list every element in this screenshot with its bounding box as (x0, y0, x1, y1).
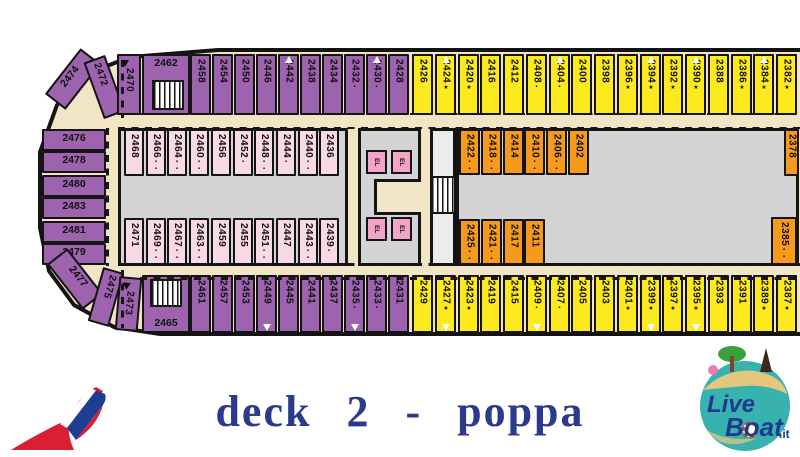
elevator-label: EL (398, 158, 405, 166)
corridor-wall-dashes (106, 128, 109, 266)
cabin-2397: 2397★ (662, 275, 683, 333)
cabin-marker: ▪ (374, 83, 380, 91)
cabin-2478: 2478 (42, 151, 106, 173)
cabin-number: 2432 (350, 56, 360, 83)
cabin-2467: 2467▪▪ (167, 218, 187, 265)
cabin-number: 2459 (216, 220, 226, 247)
cabin-number: 2469 (151, 220, 161, 247)
cabin-marker: ★ (739, 83, 745, 92)
cabin-number: 2415 (509, 277, 519, 304)
cabin-2425: 2425▪▪ (459, 219, 480, 265)
cabin-2441: 2441 (300, 275, 321, 333)
cabin-2419: 2419 (480, 275, 501, 333)
cabin-number: 2409 (532, 277, 542, 304)
cabin-2461: 2461 (190, 275, 211, 333)
cabin-marker: ▪▪ (153, 247, 159, 262)
cabin-2418: 2418▪▪ (481, 129, 502, 175)
cabin-number: 2418 (487, 131, 497, 158)
cabin-number: 2408 (532, 56, 542, 83)
cabin-number: 2392 (668, 56, 678, 83)
cabin-2420: 2420★ (458, 54, 479, 115)
cabin-2386: 2386★ (731, 54, 752, 115)
cabin-2407: 2407▪ (549, 275, 570, 333)
cabin-2460: 2460▪▪ (189, 129, 209, 176)
cabin-2387: 2387★ (776, 275, 797, 333)
cabin-marker: ★ (761, 83, 767, 92)
cabin-marker: ▪▪ (554, 158, 560, 173)
cabin-number: 2441 (306, 277, 316, 304)
cabin-marker: ▪ (557, 83, 563, 91)
cabin-number: 2405 (577, 277, 587, 304)
cabin-number: 2450 (240, 56, 250, 83)
cabin-marker: ▪ (352, 83, 358, 91)
cabin-2408: 2408▪ (526, 54, 547, 115)
cabin-2433: 2433▪ (366, 275, 387, 333)
cabin-number: 2467 (172, 220, 182, 247)
cabin-number: 2414 (509, 131, 519, 158)
cabin-number: 2463 (194, 220, 204, 247)
elevator-label: EL (398, 225, 405, 233)
cabin-number: 2466 (151, 131, 161, 158)
cabin-2403: 2403 (594, 275, 615, 333)
cabin-2457: 2457 (212, 275, 233, 333)
cabin-number: 2455 (238, 220, 248, 247)
cabin-marker: ★ (648, 83, 654, 92)
cabin-2406: 2406▪▪ (546, 129, 567, 175)
cabin-marker: ▪▪ (781, 246, 787, 261)
cabin-number: 2425 (465, 221, 475, 248)
cabin-2446: 2446 (256, 54, 277, 115)
cabin-2399: 2399★ (640, 275, 661, 333)
cabin-marker: ★ (466, 83, 472, 92)
cabin-2395: 2395★ (685, 275, 706, 333)
cabin-2454: 2454 (212, 54, 233, 115)
cabin-2411: 2411 (524, 219, 545, 265)
cabin-marker: ▪▪ (174, 247, 180, 262)
door-triangle-icon (285, 56, 293, 63)
cabin-number: 2389 (759, 277, 769, 304)
cabin-2430: 2430▪ (366, 54, 387, 115)
deck-plan-page: 24582454245024462442243824342432▪2430▪24… (0, 0, 800, 457)
cabin-2410: 2410▪▪ (524, 129, 545, 175)
cabin-number: 2483 (62, 199, 85, 212)
cabin-2432: 2432▪ (344, 54, 365, 115)
cabin-2414: 2414 (503, 129, 524, 175)
cabin-2463: 2463▪▪ (189, 218, 209, 265)
cabin-number: 2461 (196, 277, 206, 304)
cabin-2473: 2473 (115, 276, 143, 332)
door-triangle-icon (373, 56, 381, 63)
cabin-number: 2431 (394, 277, 404, 304)
cabin-number: 2407 (555, 277, 565, 304)
cabin-marker: ★ (761, 304, 767, 313)
cabin-number: 2399 (646, 277, 656, 304)
cabin-2404: 2404▪ (549, 54, 570, 115)
cabin-marker: ▪▪ (174, 158, 180, 173)
cabin-number: 2452 (238, 131, 248, 158)
corridor-wall-dashes (121, 60, 124, 118)
cabin-2449: 2449 (256, 275, 277, 333)
door-triangle-icon (351, 324, 359, 331)
cabin-marker: ▪▪ (153, 158, 159, 173)
elevator: EL (366, 150, 387, 174)
cabin-2402: 2402 (568, 129, 589, 175)
door-triangle-icon (533, 324, 541, 331)
cabin-number: 2449 (262, 277, 272, 304)
cabin-number: 2444 (281, 131, 291, 158)
cabin-number: 2437 (328, 277, 338, 304)
cabin-number: 2421 (487, 221, 497, 248)
cabin-number: 2477 (67, 263, 91, 289)
cabin-marker: ▪ (240, 158, 246, 166)
cabin-marker: ▪ (557, 304, 563, 312)
cabin-marker: ▪▪ (305, 158, 311, 173)
cabin-number: 2446 (262, 56, 272, 83)
cabin-number: 2382 (782, 56, 792, 83)
cabin-2400: 2400 (571, 54, 592, 115)
cabin-2405: 2405 (571, 275, 592, 333)
corridor-wall-dashes (140, 277, 800, 280)
cabin-2423: 2423★ (458, 275, 479, 333)
cabin-number: 2429 (418, 277, 428, 304)
cabin-2385: 2385▪▪ (771, 217, 797, 265)
liveboat-logo: Live Boat .it (687, 338, 800, 457)
cabin-marker: ★ (784, 83, 790, 92)
cabin-marker: ▪ (374, 304, 380, 312)
cabin-2459: 2459 (211, 218, 231, 265)
cabin-2443: 2443▪▪ (298, 218, 318, 265)
cabin-number: 2451 (259, 220, 269, 247)
cabin-number: 2387 (782, 277, 792, 304)
deck-title: deck 2 - poppa (0, 386, 800, 437)
cabin-number: 2395 (691, 277, 701, 304)
palm-trunk (730, 356, 734, 372)
corridor-wall-dashes (140, 113, 800, 116)
stairs-icon-fwd-bottom (150, 279, 182, 307)
cabin-marker: ★ (670, 83, 676, 92)
cabin-marker: ▪ (352, 304, 358, 312)
elevator-lobby-notch (374, 179, 421, 215)
cabin-2427: 2427★ (435, 275, 456, 333)
cabin-marker: ★ (670, 304, 676, 313)
cabin-2429: 2429 (412, 275, 433, 333)
cabin-number: 2385 (779, 219, 789, 246)
cabin-2391: 2391 (731, 275, 752, 333)
cabin-2451: 2451▪▪ (254, 218, 274, 265)
cabin-2412: 2412 (503, 54, 524, 115)
cabin-number: 2410 (530, 131, 540, 158)
tower-icon (760, 348, 772, 372)
elevator: EL (391, 150, 412, 174)
cabin-number: 2475 (101, 271, 118, 300)
cabin-marker: ★ (466, 304, 472, 313)
cabin-marker: ★ (443, 304, 449, 313)
cabin-2409: 2409▪ (526, 275, 547, 333)
cabin-2439: 2439▪ (319, 218, 339, 265)
carnival-logo (8, 382, 116, 454)
cabin-number: 2447 (281, 220, 291, 247)
cabin-2468: 2468 (124, 129, 144, 176)
cabin-2452: 2452▪ (233, 129, 253, 176)
cabin-number: 2454 (218, 56, 228, 83)
cabin-number: 2438 (306, 56, 316, 83)
cabin-number: 2472 (90, 59, 109, 88)
cabin-number: 2435 (350, 277, 360, 304)
door-triangle-icon (442, 324, 450, 331)
cabin-2464: 2464▪▪ (167, 129, 187, 176)
cabin-number: 2457 (218, 277, 228, 304)
cabin-2396: 2396★ (617, 54, 638, 115)
cabin-2481: 2481 (42, 221, 106, 243)
cabin-2453: 2453 (234, 275, 255, 333)
cabin-2476: 2476 (42, 129, 106, 151)
cabin-number: 2411 (530, 221, 540, 248)
door-triangle-icon (760, 56, 768, 63)
cabin-2417: 2417 (503, 219, 524, 265)
cabin-number: 2458 (196, 56, 206, 83)
cabin-2424: 2424★ (435, 54, 456, 115)
cabin-2483: 2483 (42, 197, 106, 219)
cabin-marker: ★ (625, 83, 631, 92)
cabin-number: 2403 (600, 277, 610, 304)
cabin-number: 2398 (600, 56, 610, 83)
cabin-number: 2402 (574, 131, 584, 158)
cabin-marker: ★ (443, 83, 449, 92)
door-triangle-icon (556, 56, 564, 63)
door-triangle-icon (263, 324, 271, 331)
cabin-2445: 2445 (278, 275, 299, 333)
cabin-number: 2480 (62, 177, 85, 190)
door-triangle-icon (647, 56, 655, 63)
cabin-2382: 2382★ (776, 54, 797, 115)
door-triangle-icon (442, 56, 450, 63)
cabin-number: 2416 (486, 56, 496, 83)
cabin-number: 2391 (737, 277, 747, 304)
elevator-label: EL (373, 225, 380, 233)
cabin-number: 2401 (623, 277, 633, 304)
cabin-number: 2476 (62, 131, 85, 144)
cabin-number: 2422 (465, 131, 475, 158)
cabin-2436: 2436 (319, 129, 339, 176)
cabin-number: 2468 (129, 131, 139, 158)
cabin-2431: 2431 (388, 275, 409, 333)
cabin-marker: ★ (648, 304, 654, 313)
cabin-number: 2448 (259, 131, 269, 158)
cabin-number: 2388 (714, 56, 724, 83)
cabin-2394: 2394★ (640, 54, 661, 115)
cabin-number: 2439 (324, 220, 334, 247)
corridor-wall-dashes (121, 270, 124, 328)
cabin-marker: ▪ (534, 304, 540, 312)
liveboat-text-boat: Boat (725, 412, 784, 442)
cabin-marker: ▪▪ (196, 158, 202, 173)
cabin-number: 2397 (668, 277, 678, 304)
elevator-label: EL (373, 158, 380, 166)
cabin-2471: 2471 (124, 218, 144, 265)
cabin-2426: 2426 (412, 54, 433, 115)
cabin-number: 2406 (552, 131, 562, 158)
cabin-number: 2396 (623, 56, 633, 83)
cabin-number: 2481 (62, 223, 85, 236)
cabin-number: 2412 (509, 56, 519, 83)
cabin-number: 2478 (62, 153, 85, 166)
cabin-2435: 2435▪ (344, 275, 365, 333)
cabin-2421: 2421▪▪ (481, 219, 502, 265)
cabin-marker: ▪▪ (467, 248, 473, 263)
cabin-number: 2443 (303, 220, 313, 247)
cabin-2444: 2444▪ (276, 129, 296, 176)
corridor-wall-dashes (118, 263, 800, 266)
cabin-number: 2423 (464, 277, 474, 304)
cabin-number: 2440 (303, 131, 313, 158)
cabin-number: 2436 (324, 131, 334, 158)
cabin-number: 2393 (714, 277, 724, 304)
cabin-2458: 2458 (190, 54, 211, 115)
cabin-2378: 2378 (784, 129, 799, 176)
cabin-2437: 2437 (322, 275, 343, 333)
cabin-number: 2378 (787, 131, 797, 158)
cabin-number: 2464 (172, 131, 182, 158)
cabin-2434: 2434 (322, 54, 343, 115)
corridor-wall-dashes (118, 127, 800, 130)
cabin-number: 2434 (328, 56, 338, 83)
cabin-number: 2433 (372, 277, 382, 304)
cabin-marker: ★ (693, 83, 699, 92)
cabin-marker: ▪ (283, 158, 289, 166)
cabin-2393: 2393 (708, 275, 729, 333)
door-triangle-icon (647, 324, 655, 331)
cabin-marker: ▪▪ (489, 158, 495, 173)
cabin-number: 2453 (240, 277, 250, 304)
cabin-number: 2445 (284, 277, 294, 304)
cabin-marker: ▪▪ (261, 158, 267, 173)
stairs-icon-fwd-top (152, 80, 184, 110)
elevator: EL (391, 217, 412, 241)
cabin-marker: ▪▪ (196, 247, 202, 262)
cabin-marker: ▪▪ (532, 158, 538, 173)
cabin-number: 2400 (577, 56, 587, 83)
cabin-2401: 2401★ (617, 275, 638, 333)
cabin-2455: 2455 (233, 218, 253, 265)
cabin-2442: 2442 (278, 54, 299, 115)
cabin-2456: 2456 (211, 129, 231, 176)
cabin-marker: ▪▪ (305, 247, 311, 262)
cabin-2422: 2422▪▪ (459, 129, 480, 175)
cabin-number: 2420 (464, 56, 474, 83)
cabin-number: 2471 (129, 220, 139, 247)
cabin-number: 2386 (737, 56, 747, 83)
cabin-number: 2456 (216, 131, 226, 158)
cabin-2448: 2448▪▪ (254, 129, 274, 176)
cabin-marker: ★ (625, 304, 631, 313)
cabin-2389: 2389★ (753, 275, 774, 333)
door-triangle-icon (692, 56, 700, 63)
cabin-number: 2428 (394, 56, 404, 83)
cabin-2390: 2390★ (685, 54, 706, 115)
cabin-marker: ★ (784, 304, 790, 313)
cabin-number: 2474 (57, 63, 81, 89)
cabin-marker: ▪▪ (467, 158, 473, 173)
cabin-number: 2426 (418, 56, 428, 83)
cabin-2415: 2415 (503, 275, 524, 333)
cabin-2469: 2469▪▪ (146, 218, 166, 265)
cabin-2440: 2440▪▪ (298, 129, 318, 176)
cabin-number: 2460 (194, 131, 204, 158)
cabin-number: 2465 (154, 318, 177, 332)
door-triangle-icon (692, 324, 700, 331)
cabin-marker: ▪ (534, 83, 540, 91)
cabin-number: 2462 (154, 56, 177, 69)
cabin-2398: 2398 (594, 54, 615, 115)
cabin-2466: 2466▪▪ (146, 129, 166, 176)
cabin-2388: 2388 (708, 54, 729, 115)
cabin-number: 2419 (486, 277, 496, 304)
cabin-2392: 2392★ (662, 54, 683, 115)
cabin-2428: 2428 (388, 54, 409, 115)
elevator: EL (366, 217, 387, 241)
cabin-marker: ▪▪ (489, 248, 495, 263)
liveboat-text-it: .it (779, 427, 790, 441)
cabin-2450: 2450 (234, 54, 255, 115)
cabin-2438: 2438 (300, 54, 321, 115)
cabin-2416: 2416 (480, 54, 501, 115)
cabin-number: 2427 (441, 277, 451, 304)
flower-icon (708, 365, 718, 375)
stairs-icon-mid (430, 176, 456, 214)
cabin-marker: ★ (693, 304, 699, 313)
cabin-marker: ▪▪ (261, 247, 267, 262)
cabin-2384: 2384★ (753, 54, 774, 115)
cabin-marker: ▪ (326, 247, 332, 255)
cabin-2480: 2480 (42, 175, 106, 197)
cabin-number: 2417 (509, 221, 519, 248)
cabin-2447: 2447 (276, 218, 296, 265)
